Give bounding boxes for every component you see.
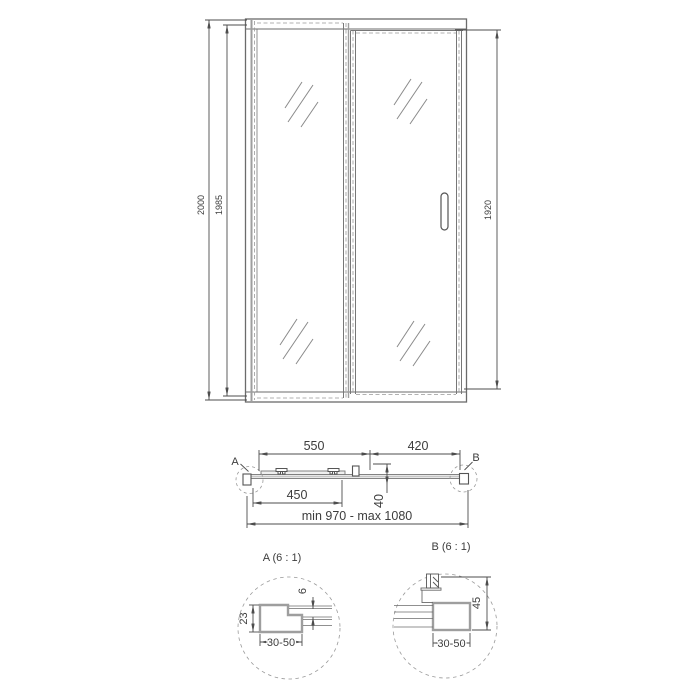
- wall-profile-right: [460, 474, 469, 485]
- detail-a-dim-adjust-value: 30-50: [267, 637, 295, 649]
- detail-b-marker-label: B: [472, 452, 479, 464]
- detail-a-dim-height: [249, 605, 259, 632]
- stopper-bracket: [353, 466, 360, 476]
- detail-b-rail-lines: [394, 606, 433, 628]
- dim-door-height-value: 1920: [483, 200, 493, 220]
- detail-b-dim-height-value: 45: [471, 597, 483, 609]
- dim-inner-height-value: 1985: [214, 195, 224, 215]
- wall-profile-left: [243, 474, 251, 485]
- technical-drawing-page: 2000 1985 1920: [0, 0, 700, 700]
- detail-a-marker-label: A: [231, 456, 239, 468]
- dim-range-value: min 970 - max 1080: [302, 509, 413, 523]
- dim-rail-width-value: 450: [287, 488, 308, 502]
- detail-a-dim-height-value: 23: [238, 612, 250, 624]
- front-view-drawing: 2000 1985 1920: [196, 19, 501, 402]
- dim-depth-value: 40: [372, 494, 386, 508]
- detail-a-title: A (6 : 1): [263, 552, 302, 564]
- detail-a-dim-glass-value: 6: [297, 588, 309, 594]
- plan-view-drawing: A B 550 420 450 40: [231, 439, 479, 528]
- detail-b-title: B (6 : 1): [431, 541, 470, 553]
- dim-total-height-value: 2000: [196, 195, 206, 215]
- shower-door-drawing: 2000 1985 1920: [0, 0, 700, 700]
- dim-inner-height: [223, 25, 247, 396]
- detail-b-profile: [433, 603, 470, 630]
- detail-b-connector: [421, 588, 441, 603]
- detail-a-drawing: A (6 : 1) 23 6 30-50: [238, 552, 340, 679]
- dim-total-height: [205, 20, 247, 400]
- door-handle: [441, 193, 448, 230]
- dim-left-width-value: 550: [304, 439, 325, 453]
- detail-b-wall-bracket: [427, 574, 439, 588]
- dim-right-width-value: 420: [408, 439, 429, 453]
- detail-a-profile: [260, 605, 302, 632]
- detail-b-drawing: B (6 : 1) 45: [393, 541, 497, 678]
- detail-b-dim-adjust-value: 30-50: [437, 638, 465, 650]
